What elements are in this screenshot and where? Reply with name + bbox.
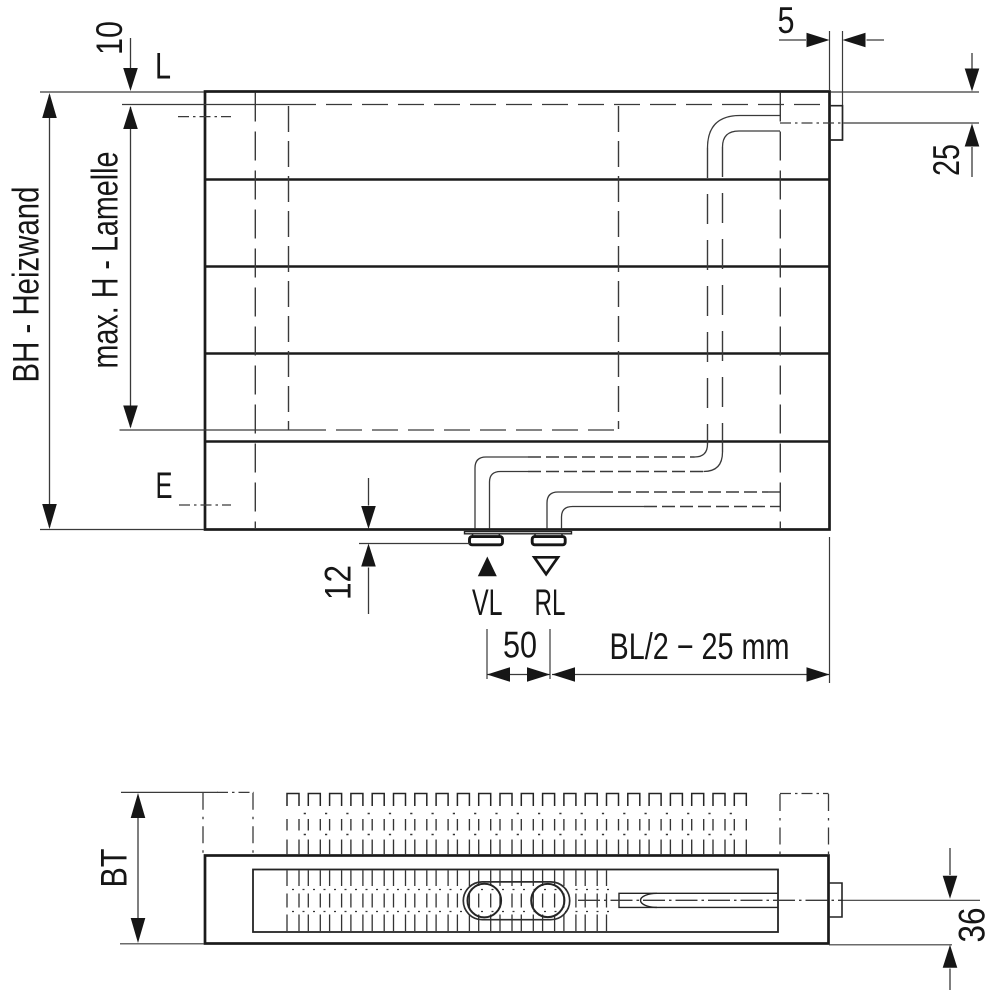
svg-text:max. H - Lamelle: max. H - Lamelle bbox=[85, 152, 126, 369]
svg-text:36: 36 bbox=[952, 908, 993, 943]
svg-text:BH - Heizwand: BH - Heizwand bbox=[6, 187, 47, 383]
svg-text:VL: VL bbox=[472, 582, 503, 623]
svg-text:10: 10 bbox=[89, 21, 130, 55]
svg-text:RL: RL bbox=[535, 582, 566, 623]
svg-text:E: E bbox=[156, 465, 173, 506]
svg-text:BT: BT bbox=[94, 849, 135, 888]
svg-text:50: 50 bbox=[503, 625, 537, 666]
svg-text:L: L bbox=[155, 46, 171, 87]
svg-text:BL/2 − 25 mm: BL/2 − 25 mm bbox=[610, 626, 790, 667]
svg-text:5: 5 bbox=[778, 0, 795, 41]
svg-text:25: 25 bbox=[926, 144, 967, 176]
svg-text:12: 12 bbox=[318, 565, 359, 600]
